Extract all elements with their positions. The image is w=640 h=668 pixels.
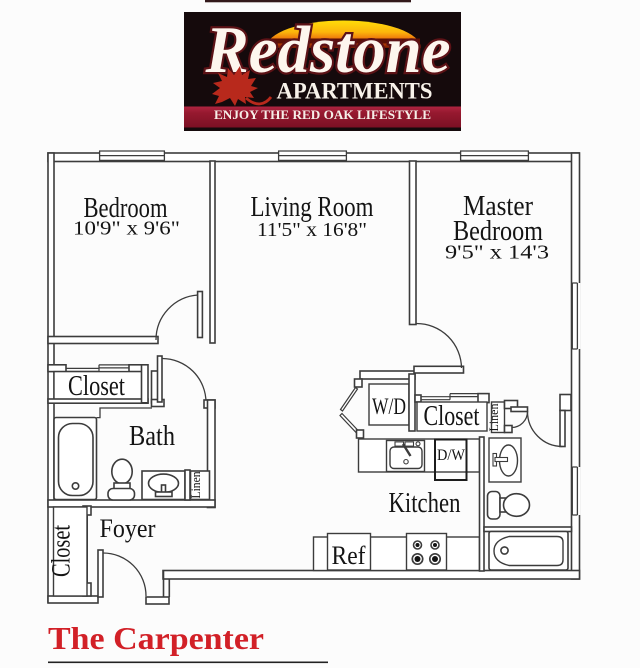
svg-text:9'5" x 14'3: 9'5" x 14'3 xyxy=(445,242,549,264)
svg-text:11'5" x 16'8": 11'5" x 16'8" xyxy=(257,219,367,241)
svg-text:APARTMENTS: APARTMENTS xyxy=(277,79,433,104)
svg-text:The Carpenter: The Carpenter xyxy=(48,620,264,656)
svg-text:Linen: Linen xyxy=(486,403,501,431)
svg-text:10'9" x 9'6": 10'9" x 9'6" xyxy=(73,218,180,240)
svg-text:Linen: Linen xyxy=(188,471,203,498)
svg-text:D/W: D/W xyxy=(437,447,466,464)
svg-text:W/D: W/D xyxy=(372,394,406,419)
svg-text:ENJOY THE RED OAK LIFESTYLE: ENJOY THE RED OAK LIFESTYLE xyxy=(214,108,431,122)
svg-text:Bath: Bath xyxy=(129,421,175,452)
svg-text:Ref: Ref xyxy=(332,541,366,570)
svg-text:Closet: Closet xyxy=(424,401,480,432)
svg-text:Foyer: Foyer xyxy=(100,514,156,543)
svg-text:Closet: Closet xyxy=(68,371,125,402)
svg-text:Kitchen: Kitchen xyxy=(389,487,461,519)
svg-text:Closet: Closet xyxy=(47,524,76,577)
